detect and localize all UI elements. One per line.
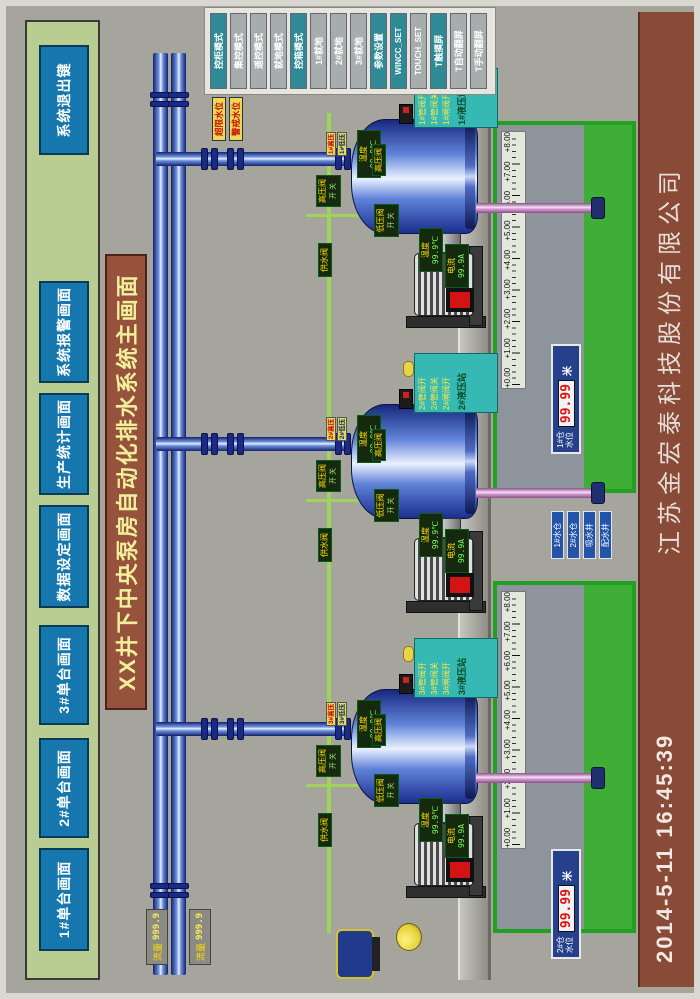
lv-tag: 1#低压	[337, 132, 347, 156]
supply-valve-label: 供水阀	[318, 243, 332, 277]
alarm-tag: 超限水位	[212, 97, 226, 141]
flow-value: 999.9	[152, 913, 162, 940]
flange-icon	[211, 718, 218, 740]
hyd-row: 2#闸阀开	[441, 356, 453, 410]
pump-unit-3: 温度99.9℃ 温度99.9℃ 电流99.9A 3#管阀开 3#管阀关 3#闸阀…	[151, 598, 606, 898]
hp-valve-label: 高压阀开 关	[316, 460, 341, 492]
flange-icon	[237, 148, 244, 170]
nav-button-unit3[interactable]: 3#单台画面	[39, 625, 89, 725]
motor-indicator	[446, 858, 474, 882]
suction-pipe	[476, 488, 598, 498]
nav-button-statistics[interactable]: 生产统计画面	[39, 393, 89, 495]
riser-pipe	[156, 722, 351, 736]
hp-valve-label: 高压阀开 关	[316, 175, 341, 207]
flow-meter-1: 流量 999.9	[146, 909, 168, 965]
lv-tag: 2#低压	[337, 417, 347, 441]
flange-icon	[201, 718, 208, 740]
mode-button[interactable]: 就地模式	[270, 13, 287, 89]
flow-label: 流量	[194, 943, 207, 961]
hyd-title: 2#液压站	[455, 356, 468, 410]
hv-tag: 2#高压	[326, 417, 336, 441]
mode-button[interactable]: 3#就地	[350, 13, 367, 89]
motor-indicator	[446, 288, 474, 312]
motor-current-label: 电流99.9A	[445, 529, 469, 573]
riser-pipe	[156, 437, 351, 451]
hmi-screen: +0.00+1.00+2.00+3.00+4.00+5.00+6.00+7.00…	[0, 0, 700, 999]
hv-tag: 1#高压	[326, 132, 336, 156]
flange-icon	[211, 148, 218, 170]
flange-icon	[237, 718, 244, 740]
mode-button[interactable]: T触摸屏	[430, 13, 447, 89]
flange-icon	[211, 433, 218, 455]
riser-pipe	[156, 152, 351, 166]
mode-button[interactable]: T自动翻屏	[450, 13, 467, 89]
foot-valve-icon	[591, 197, 605, 219]
alarm-tag: 警戒水位	[229, 97, 243, 141]
hyd-row: 3#管阀开	[417, 641, 429, 695]
nav-button-exit[interactable]: 系统退出键	[39, 45, 89, 155]
hyd-row: 2#管阀开	[417, 356, 429, 410]
motor-current-label: 电流99.9A	[445, 814, 469, 858]
flange-icon	[237, 433, 244, 455]
motor-indicator	[446, 573, 474, 597]
pipe-valve-label: 高压阀	[372, 429, 386, 461]
mode-button[interactable]: TOUCH_SET	[410, 13, 427, 89]
suction-pipe	[476, 203, 598, 213]
nav-button-unit2[interactable]: 2#单台画面	[39, 738, 89, 838]
lp-valve-label: 低压阀开 关	[374, 204, 399, 237]
hyd-row: 3#闸阀开	[441, 641, 453, 695]
flange-icon	[201, 433, 208, 455]
flow-meter-2: 流量 999.9	[189, 909, 211, 965]
supply-valve-label: 供水阀	[318, 528, 332, 562]
level-value: 99.99	[558, 380, 575, 427]
pipe-valve-label: 高压阀	[372, 144, 386, 176]
nav-button-alarm[interactable]: 系统报警画面	[39, 281, 89, 383]
hyd-row: 3#管阀关	[429, 641, 441, 695]
hydraulic-station: 3#管阀开 3#管阀关 3#闸阀开 3#液压站	[414, 638, 498, 698]
lv-tag: 3#低压	[337, 702, 347, 726]
legend-item: 配水井	[599, 511, 612, 559]
mode-button[interactable]: 控柜模式	[210, 13, 227, 89]
mode-button[interactable]: 参数设置	[370, 13, 387, 89]
mode-button[interactable]: 集控模式	[230, 13, 247, 89]
mode-button[interactable]: 2#就地	[330, 13, 347, 89]
hyd-oil-pump-icon	[399, 674, 413, 694]
title-bar: XX井下中央泵房自动化排水系统主画面	[105, 254, 147, 710]
bottom-banner: 2014-5-11 16:45:39 江苏金宏泰科技股份有限公司	[638, 12, 694, 987]
motor-temp-label: 温度99.9℃	[419, 798, 443, 842]
lp-valve-label: 低压阀开 关	[374, 489, 399, 522]
foot-valve-icon	[591, 482, 605, 504]
level-value: 99.99	[558, 885, 575, 932]
hyd-title: 3#液压站	[455, 641, 468, 695]
motor-temp-label: 温度99.9℃	[419, 513, 443, 557]
level-readout-1: 1#仓水位 99.99 米	[551, 344, 581, 454]
pump-unit-2: 温度99.9℃ 温度99.9℃ 电流99.9A 2#管阀开 2#管阀关 2#闸阀…	[151, 313, 606, 613]
level-unit: 米	[559, 871, 574, 881]
aux-pump-icon	[336, 929, 374, 979]
hyd-oil-pump-icon	[399, 389, 413, 409]
page-title: XX井下中央泵房自动化排水系统主画面	[110, 273, 142, 690]
mode-button[interactable]: 控箱模式	[290, 13, 307, 89]
alarm-beacon-icon	[396, 923, 422, 951]
hyd-indicator-icon	[403, 646, 414, 662]
hyd-row: 2#管阀关	[429, 356, 441, 410]
nav-button-data-setting[interactable]: 数据设定画面	[39, 505, 89, 608]
hv-tag: 3#高压	[326, 702, 336, 726]
hydraulic-station: 2#管阀开 2#管阀关 2#闸阀开 2#液压站	[414, 353, 498, 413]
motor-temp-label: 温度99.9℃	[419, 228, 443, 272]
lp-valve-label: 低压阀开 关	[374, 774, 399, 807]
flow-value: 999.9	[195, 913, 205, 940]
legend-item: 2#水仓	[567, 511, 580, 559]
company-name: 江苏金宏泰科技股份有限公司	[650, 165, 685, 555]
flange-icon	[227, 718, 234, 740]
legend-item: 1#水仓	[551, 511, 564, 559]
flange-icon	[227, 148, 234, 170]
flange-icon	[227, 433, 234, 455]
flow-label: 流量	[151, 943, 164, 961]
level-unit: 米	[559, 366, 574, 376]
datetime: 2014-5-11 16:45:39	[652, 734, 678, 963]
nav-button-unit1[interactable]: 1#单台画面	[39, 848, 89, 951]
mode-button[interactable]: WINCC_SET	[390, 13, 407, 89]
foot-valve-icon	[591, 767, 605, 789]
hyd-oil-pump-icon	[399, 104, 413, 124]
pipe-valve-label: 高压阀	[372, 714, 386, 746]
mode-button[interactable]: T手动翻屏	[470, 13, 487, 89]
hyd-indicator-icon	[403, 361, 414, 377]
flange-icon	[201, 148, 208, 170]
supply-valve-label: 供水阀	[318, 813, 332, 847]
rotated-photo-frame: +0.00+1.00+2.00+3.00+4.00+5.00+6.00+7.00…	[0, 0, 700, 999]
level-readout-2: 2#仓水位 99.99 米	[551, 849, 581, 959]
suction-pipe	[476, 773, 598, 783]
legend-item: 吸水井	[583, 511, 596, 559]
mode-button[interactable]: 遥控模式	[250, 13, 267, 89]
mode-button[interactable]: 1#就地	[310, 13, 327, 89]
motor-current-label: 电流99.9A	[445, 244, 469, 288]
nav-bar: 1#单台画面 2#单台画面 3#单台画面 数据设定画面 生产统计画面 系统报警画…	[25, 20, 100, 980]
hp-valve-label: 高压阀开 关	[316, 745, 341, 777]
